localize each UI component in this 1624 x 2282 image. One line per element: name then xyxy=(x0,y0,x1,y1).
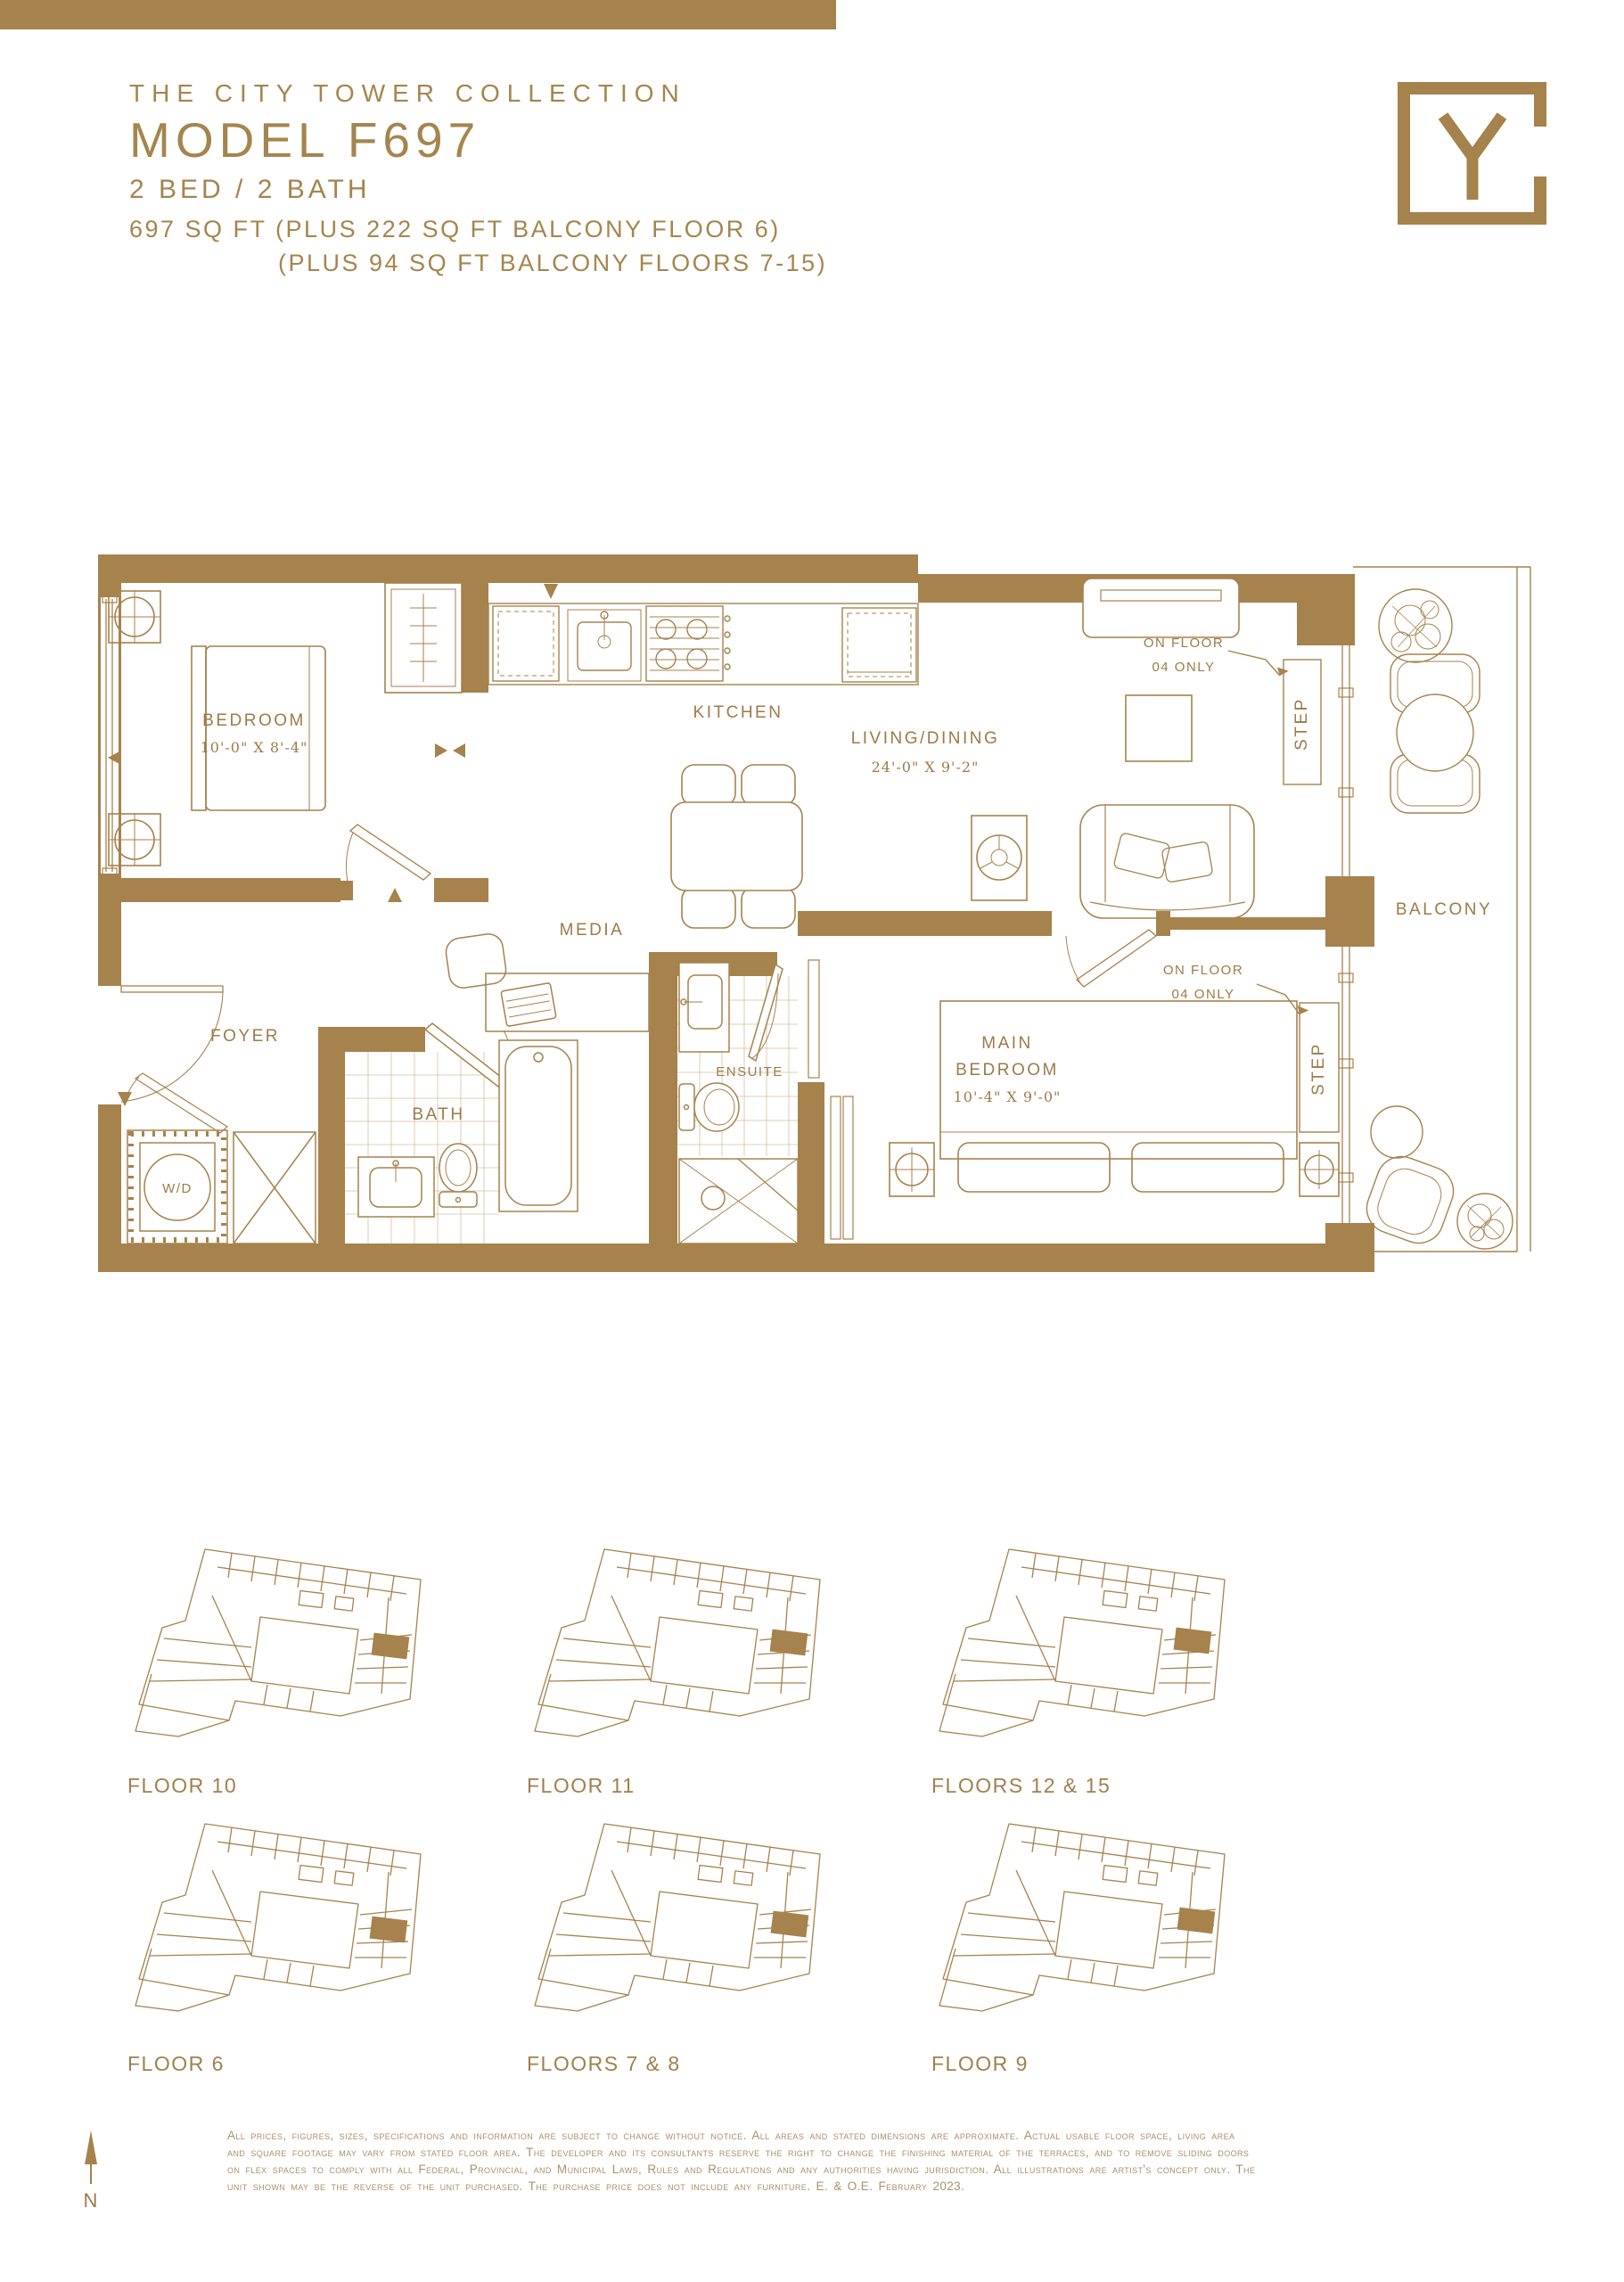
kitchen-label: KITCHEN xyxy=(693,703,783,722)
main-bedroom-closet xyxy=(831,1096,853,1239)
closet xyxy=(385,583,462,693)
disclaimer-line-4: unit shown may be the reverse of the uni… xyxy=(227,2178,1518,2195)
stove-icon xyxy=(646,606,730,681)
laptop-icon xyxy=(501,982,556,1026)
dining-set xyxy=(671,765,802,928)
bedroom-door xyxy=(346,825,431,900)
coffee-table xyxy=(1126,695,1192,761)
keyplate-floor-6 xyxy=(125,1815,428,2036)
keyplate-floor-11 xyxy=(524,1540,827,1761)
keyplate-floor-10 xyxy=(125,1540,428,1761)
wd-label: W/D xyxy=(162,1181,193,1196)
foyer-area xyxy=(121,986,316,1244)
living-label: LIVING/DINING xyxy=(851,729,1000,748)
top-accent-bar xyxy=(0,0,836,29)
sink-icon xyxy=(568,610,641,681)
north-arrow: N xyxy=(73,2130,112,2212)
step-upper: STEP xyxy=(1284,660,1321,784)
main-bedroom-dims: 10'-4" X 9'-0" xyxy=(954,1088,1062,1105)
bath-area xyxy=(345,1023,578,1244)
pillow xyxy=(1132,1143,1284,1192)
sofa xyxy=(1080,805,1254,918)
pillow xyxy=(958,1143,1110,1192)
dining-table xyxy=(671,802,802,891)
toilet-icon xyxy=(439,1144,477,1207)
balcony-dining-set xyxy=(1390,654,1480,813)
balcony-furniture xyxy=(1360,589,1513,1250)
brand-logo: Y xyxy=(1398,82,1549,225)
tree-icon xyxy=(1379,589,1452,662)
area-line-2: (PLUS 94 SQ FT BALCONY FLOORS 7-15) xyxy=(278,246,827,280)
living-dims: 24'-0" X 9'-2" xyxy=(872,759,980,776)
ensuite-toilet-icon xyxy=(679,1083,739,1131)
logo-letter-y-icon xyxy=(1443,116,1502,200)
step-upper-label: STEP xyxy=(1292,697,1311,751)
main-bedroom-label-2: BEDROOM xyxy=(956,1061,1059,1079)
keyplate-label-floor-10: FLOOR 10 xyxy=(127,1774,237,1798)
dining-chair xyxy=(682,765,735,806)
fridge-icon xyxy=(493,606,559,681)
foyer-label: FOYER xyxy=(210,1027,280,1046)
disclaimer: All prices, figures, sizes, specificatio… xyxy=(227,2127,1518,2195)
desk-chair xyxy=(444,932,507,989)
step-lower-label: STEP xyxy=(1309,1042,1328,1096)
floorplan: BEDROOM 10'-0" X 8'-4" xyxy=(98,554,1569,1299)
disclaimer-line-1: All prices, figures, sizes, specificatio… xyxy=(227,2127,1518,2144)
keyplate-floor-9 xyxy=(929,1815,1232,2036)
shower-icon xyxy=(679,1159,798,1244)
media-desk xyxy=(486,973,649,1031)
main-bedroom-furniture xyxy=(808,960,1339,1239)
main-bedroom-label-1: MAIN xyxy=(981,1034,1033,1053)
lamp-icon xyxy=(890,1147,934,1192)
dishwasher-icon xyxy=(842,608,916,682)
bedroom-label: BEDROOM xyxy=(202,711,306,730)
keyplate-floors-12-15 xyxy=(929,1540,1232,1761)
balcony-ottoman xyxy=(1371,1106,1423,1158)
keyplate-label-floors-7-8: FLOORS 7 & 8 xyxy=(527,2052,681,2076)
collection-title: THE CITY TOWER COLLECTION xyxy=(129,78,827,109)
north-label: N xyxy=(84,2189,99,2212)
dining-chair xyxy=(682,887,735,928)
ensuite-area xyxy=(677,963,798,1244)
entry-door xyxy=(121,986,223,1102)
bed-bath-line: 2 BED / 2 BATH xyxy=(129,173,827,207)
disclaimer-line-3: on flex spaces to comply with all Federa… xyxy=(227,2161,1518,2178)
keyplate-label-floor-11: FLOOR 11 xyxy=(527,1774,636,1798)
bathtub-icon xyxy=(499,1040,578,1211)
keyplate-floors-7-8 xyxy=(524,1815,827,2036)
ensuite-door xyxy=(749,965,783,1061)
title-block: THE CITY TOWER COLLECTION MODEL F697 2 B… xyxy=(129,78,827,280)
ensuite-sink-icon xyxy=(679,963,729,1052)
keyplate-label-floor-6: FLOOR 6 xyxy=(127,2052,225,2076)
lounge-chair xyxy=(1360,1150,1461,1251)
foyer-closet-door xyxy=(125,1073,227,1133)
ensuite-fixtures xyxy=(679,963,798,1244)
media-label: MEDIA xyxy=(560,921,625,940)
bath-sink-icon xyxy=(358,1157,434,1217)
on-floor-lower-line1: ON FLOOR xyxy=(1163,963,1243,978)
foyer-closet-x xyxy=(234,1132,316,1244)
dining-chair xyxy=(742,765,795,806)
on-floor-lower-line2: 04 ONLY xyxy=(1171,987,1234,1002)
main-bedroom-swing-door xyxy=(1066,930,1156,987)
on-floor-upper-line1: ON FLOOR xyxy=(1144,636,1224,651)
on-floor-note-upper: ON FLOOR 04 ONLY xyxy=(1144,636,1289,678)
side-table xyxy=(972,816,1027,900)
tv-console xyxy=(1083,579,1239,637)
main-bed xyxy=(940,1001,1297,1159)
on-floor-note-lower: ON FLOOR 04 ONLY xyxy=(1163,963,1308,1017)
tree-icon xyxy=(1457,1194,1513,1249)
dining-chair xyxy=(742,887,795,928)
keyplate-label-floor-9: FLOOR 9 xyxy=(931,2052,1029,2076)
ensuite-label: ENSUITE xyxy=(716,1064,783,1079)
kitchen-counter xyxy=(488,603,918,685)
area-line-1: 697 SQ FT (PLUS 222 SQ FT BALCONY FLOOR … xyxy=(129,212,827,246)
disclaimer-line-2: and square footage may vary from stated … xyxy=(227,2144,1518,2161)
on-floor-upper-line2: 04 ONLY xyxy=(1152,660,1215,675)
bedroom-dims: 10'-0" X 8'-4" xyxy=(201,739,308,756)
main-bedroom-door-leaf xyxy=(808,960,819,1078)
balcony-label: BALCONY xyxy=(1396,900,1492,919)
lamp-icon xyxy=(1300,1150,1339,1189)
bath-label: BATH xyxy=(412,1105,464,1124)
model-title: MODEL F697 xyxy=(129,112,827,168)
media-area xyxy=(444,932,649,1031)
step-lower: STEP xyxy=(1300,1003,1339,1132)
keyplate-label-floors-12-15: FLOORS 12 & 15 xyxy=(931,1774,1111,1798)
